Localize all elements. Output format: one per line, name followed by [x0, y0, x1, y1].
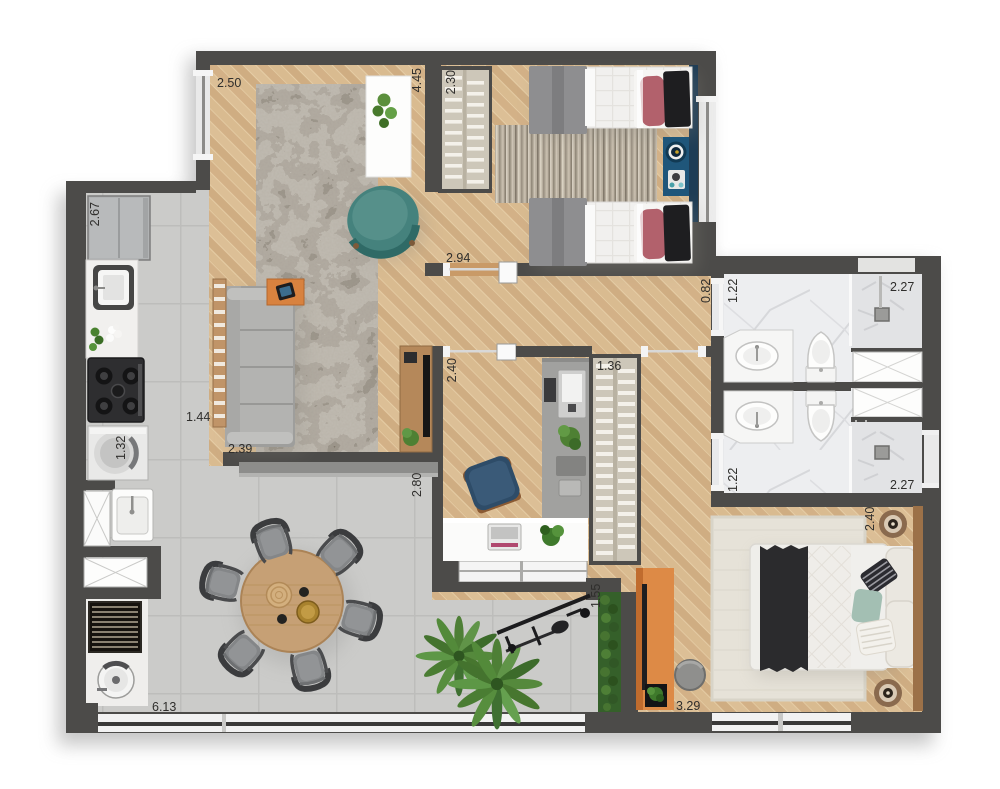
svg-text:2.40: 2.40: [863, 507, 877, 531]
svg-text:6.13: 6.13: [152, 700, 176, 714]
svg-text:1.32: 1.32: [114, 436, 128, 460]
svg-text:4.45: 4.45: [410, 68, 424, 92]
svg-text:0.82: 0.82: [699, 279, 713, 303]
svg-text:2.27: 2.27: [890, 280, 914, 294]
svg-text:1.22: 1.22: [726, 279, 740, 303]
svg-text:2.80: 2.80: [410, 473, 424, 497]
svg-text:2.94: 2.94: [446, 251, 470, 265]
svg-text:3.29: 3.29: [676, 699, 700, 713]
svg-text:2.30: 2.30: [444, 70, 458, 94]
svg-text:1.44: 1.44: [186, 410, 210, 424]
svg-text:2.40: 2.40: [445, 358, 459, 382]
svg-text:1.22: 1.22: [726, 468, 740, 492]
svg-text:2.50: 2.50: [217, 76, 241, 90]
svg-text:1.55: 1.55: [589, 584, 603, 608]
svg-text:2.67: 2.67: [88, 202, 102, 226]
svg-text:2.27: 2.27: [890, 478, 914, 492]
svg-text:2.39: 2.39: [228, 442, 252, 456]
svg-text:1.36: 1.36: [597, 359, 621, 373]
